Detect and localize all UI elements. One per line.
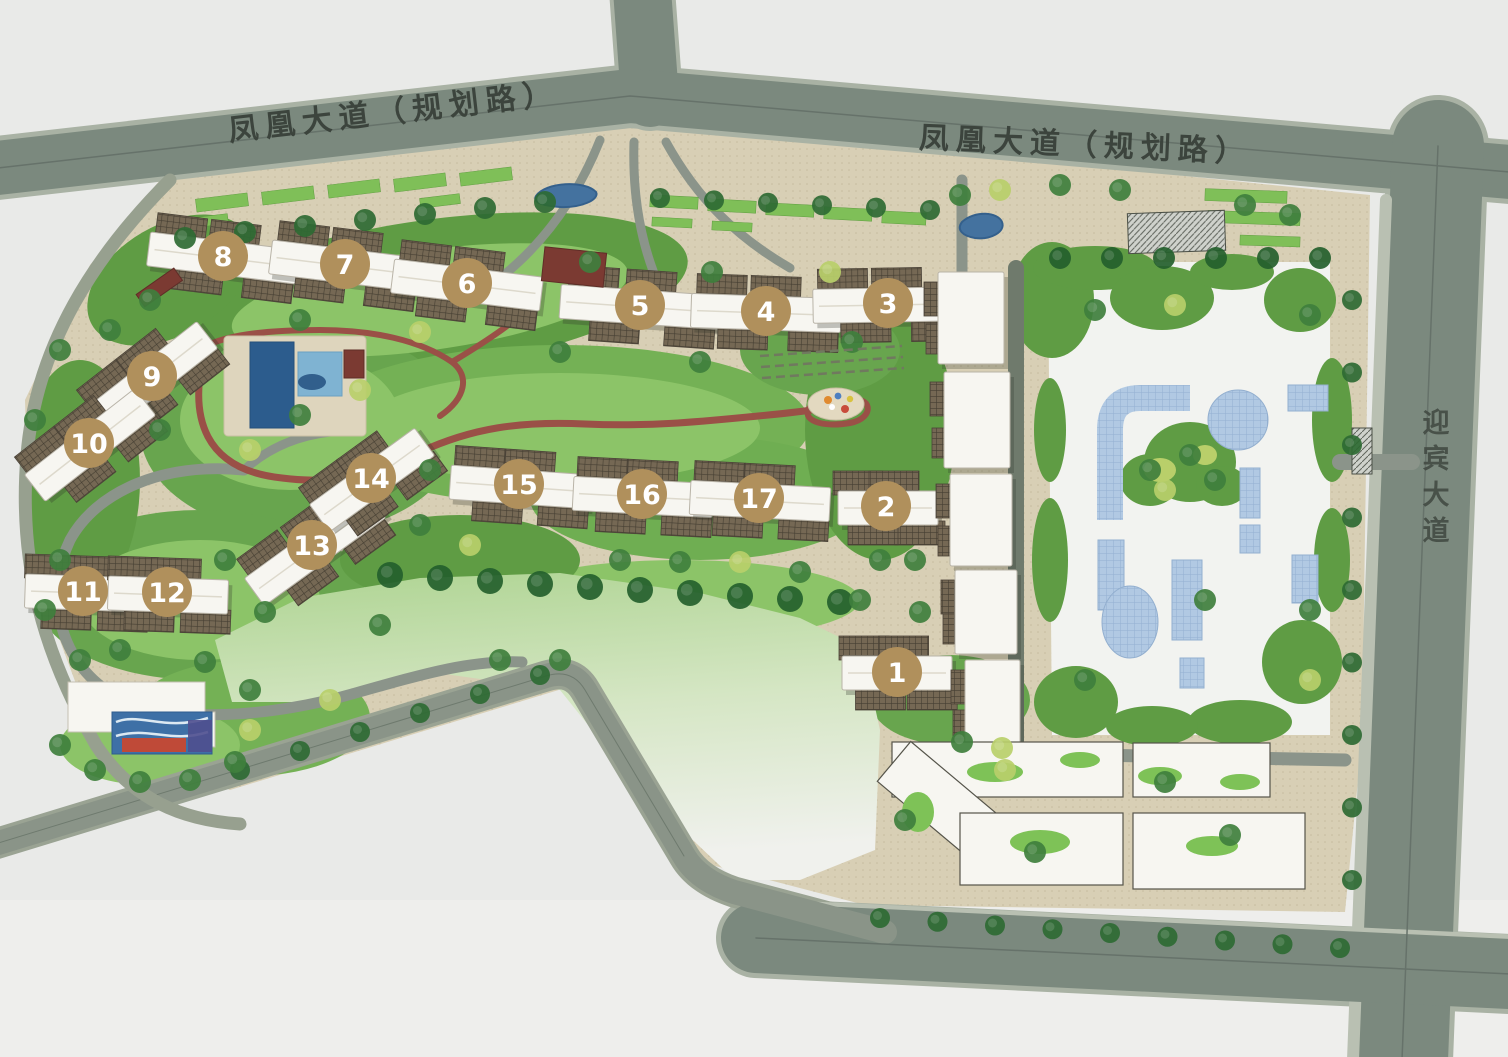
tree-icon (239, 679, 261, 701)
tree-highlight (242, 442, 252, 452)
tree-icon (34, 599, 56, 621)
tree-highlight (242, 722, 252, 732)
tree-highlight (1345, 728, 1354, 737)
tile-circle-plaza (1208, 390, 1268, 450)
tree-highlight (217, 552, 227, 562)
tree-icon (84, 759, 106, 781)
tree-highlight (1333, 941, 1342, 950)
tree-icon (99, 319, 121, 341)
tree-highlight (612, 552, 622, 562)
tree-icon (1049, 174, 1071, 196)
tree-highlight (1345, 438, 1354, 447)
tree-highlight (242, 682, 252, 692)
tree-icon (377, 562, 403, 588)
tree-icon (1219, 824, 1241, 846)
tree-highlight (87, 762, 97, 772)
tree-icon (1024, 841, 1046, 863)
tree-icon (777, 586, 803, 612)
tree-highlight (1027, 844, 1037, 854)
tree-icon (1273, 934, 1293, 954)
tree-highlight (531, 575, 543, 587)
tree-highlight (873, 911, 882, 920)
badge-number: 11 (64, 577, 102, 608)
tree-highlight (852, 592, 862, 602)
building-badge-11: 11 (58, 566, 108, 616)
tree-highlight (1345, 801, 1354, 810)
tree-highlight (1312, 250, 1322, 260)
tree-icon (1299, 304, 1321, 326)
tree-highlight (1052, 250, 1062, 260)
badge-number: 3 (879, 289, 898, 320)
tree-highlight (954, 734, 964, 744)
tree-icon (1139, 459, 1161, 481)
tree-icon (1109, 179, 1131, 201)
tree-icon (1342, 653, 1362, 673)
tree-highlight (1208, 250, 1218, 260)
tree-highlight (417, 206, 427, 216)
tree-icon (534, 191, 556, 213)
tree-icon (579, 251, 601, 273)
tree-highlight (732, 554, 742, 564)
building-badge-12: 12 (142, 567, 192, 617)
building-badge-14: 14 (346, 453, 396, 503)
tree-icon (1154, 771, 1176, 793)
tree-highlight (707, 193, 716, 202)
tree-icon (239, 439, 261, 461)
tree-icon (870, 908, 890, 928)
tree-icon (254, 601, 276, 623)
tree-highlight (931, 915, 940, 924)
tree-icon (1342, 508, 1362, 528)
tree-icon (1257, 247, 1279, 269)
tree-icon (1164, 294, 1186, 316)
tree-highlight (381, 566, 393, 578)
building-badge-13: 13 (287, 520, 337, 570)
tree-icon (1179, 444, 1201, 466)
tree-icon (1204, 469, 1226, 491)
tree-highlight (1197, 592, 1207, 602)
tree-highlight (1077, 672, 1087, 682)
tree-icon (1330, 938, 1350, 958)
tree-highlight (142, 292, 152, 302)
tree-highlight (1302, 602, 1312, 612)
tree-highlight (792, 564, 802, 574)
building-badge-7: 7 (320, 239, 370, 289)
plaza-green-blob (1106, 706, 1198, 746)
tree-highlight (1207, 472, 1217, 482)
tree-icon (409, 321, 431, 343)
tree-highlight (869, 201, 878, 210)
tree-icon (1342, 798, 1362, 818)
tree-icon (174, 227, 196, 249)
tree-highlight (353, 725, 362, 734)
tree-icon (1043, 919, 1063, 939)
tree-highlight (731, 587, 743, 599)
tree-icon (470, 684, 490, 704)
tree-icon (650, 188, 670, 208)
tree-icon (369, 614, 391, 636)
tree-highlight (1345, 656, 1354, 665)
tree-icon (530, 665, 550, 685)
tree-highlight (912, 604, 922, 614)
tree-highlight (1157, 774, 1167, 784)
tree-highlight (1302, 307, 1312, 317)
building-badge-6: 6 (442, 258, 492, 308)
tree-icon (727, 583, 753, 609)
play-equipment-white (829, 404, 835, 410)
tree-icon (909, 601, 931, 623)
tree-icon (1342, 580, 1362, 600)
tree-icon (669, 551, 691, 573)
tree-highlight (292, 312, 302, 322)
badge-number: 12 (148, 578, 186, 609)
tree-highlight (1345, 366, 1354, 375)
tree-icon (129, 771, 151, 793)
tree-highlight (477, 200, 487, 210)
tree-icon (194, 651, 216, 673)
tree-highlight (357, 212, 367, 222)
building-badge-3: 3 (863, 278, 913, 328)
tree-icon (1205, 247, 1227, 269)
tree-highlight (412, 324, 422, 334)
badge-number: 8 (214, 242, 233, 273)
tree-highlight (831, 593, 843, 605)
building-badge-8: 8 (198, 231, 248, 281)
tree-icon (827, 589, 853, 615)
tree-highlight (1302, 672, 1312, 682)
tree-highlight (822, 264, 832, 274)
tree-icon (849, 589, 871, 611)
tree-highlight (52, 737, 62, 747)
tree-highlight (112, 642, 122, 652)
tree-icon (459, 534, 481, 556)
plaza-green-blob (1188, 700, 1292, 744)
tree-icon (994, 759, 1016, 781)
tree-highlight (132, 774, 142, 784)
hedge-bar (1240, 235, 1300, 247)
tree-highlight (413, 706, 422, 715)
main-pool (250, 342, 294, 428)
tree-icon (577, 574, 603, 600)
tree-icon (1342, 363, 1362, 383)
tree-highlight (412, 517, 422, 527)
hedge-bar (712, 221, 752, 232)
tree-highlight (997, 762, 1007, 772)
tree-icon (409, 514, 431, 536)
tree-icon (69, 649, 91, 671)
badge-number: 1 (888, 658, 907, 689)
tree-highlight (1052, 177, 1062, 187)
tree-highlight (672, 554, 682, 564)
tile-oval (1102, 586, 1158, 658)
badge-number: 5 (631, 291, 650, 322)
tree-icon (427, 565, 453, 591)
play-equipment-red (841, 405, 849, 413)
tree-icon (1279, 204, 1301, 226)
tree-icon (609, 549, 631, 571)
tree-highlight (761, 196, 770, 205)
tree-highlight (1142, 462, 1152, 472)
tree-icon (1158, 927, 1178, 947)
tower-slab (955, 570, 1017, 654)
tree-highlight (533, 668, 542, 677)
tower-slab (938, 272, 1004, 364)
tree-highlight (152, 422, 162, 432)
tree-highlight (992, 182, 1002, 192)
tree-highlight (897, 812, 907, 822)
tree-highlight (815, 198, 824, 207)
tree-highlight (1087, 302, 1097, 312)
tree-highlight (227, 754, 237, 764)
tree-icon (149, 419, 171, 441)
tree-highlight (537, 194, 547, 204)
tree-highlight (431, 569, 443, 581)
tree-highlight (462, 537, 472, 547)
tree-highlight (1260, 250, 1270, 260)
tree-highlight (692, 354, 702, 364)
tree-highlight (872, 552, 882, 562)
tree-highlight (182, 772, 192, 782)
tree-icon (985, 916, 1005, 936)
pool-red-deck (122, 738, 186, 752)
tree-icon (49, 549, 71, 571)
tree-highlight (923, 203, 932, 212)
tree-highlight (781, 590, 793, 602)
badge-number: 4 (757, 297, 776, 328)
tree-highlight (293, 744, 302, 753)
tree-highlight (552, 344, 562, 354)
tree-icon (812, 195, 832, 215)
tree-icon (1215, 931, 1235, 951)
tile-rect (1292, 555, 1318, 603)
tree-icon (214, 549, 236, 571)
tree-icon (294, 215, 316, 237)
tree-highlight (844, 334, 854, 344)
playground (808, 388, 864, 420)
tree-highlight (1282, 207, 1292, 217)
tree-icon (869, 549, 891, 571)
tree-highlight (372, 617, 382, 627)
tree-highlight (473, 687, 482, 696)
tree-icon (789, 561, 811, 583)
play-equipment-yellow (847, 396, 853, 402)
badge-number: 9 (143, 362, 162, 393)
tree-highlight (1167, 297, 1177, 307)
badge-number: 13 (293, 531, 331, 562)
tree-highlight (907, 552, 917, 562)
tree-icon (989, 179, 1011, 201)
building-badge-15: 15 (494, 459, 544, 509)
tree-highlight (988, 919, 997, 928)
tree-icon (704, 190, 724, 210)
building-badge-16: 16 (617, 469, 667, 519)
tree-highlight (552, 652, 562, 662)
tile-rect (1180, 658, 1204, 688)
badge-number: 17 (740, 484, 778, 515)
tree-highlight (631, 581, 643, 593)
tree-icon (1342, 725, 1362, 745)
tree-icon (1234, 194, 1256, 216)
tree-highlight (177, 230, 187, 240)
tree-highlight (582, 254, 592, 264)
tree-highlight (102, 322, 112, 332)
tree-icon (1299, 669, 1321, 691)
hedge-bar (882, 211, 927, 225)
tree-icon (951, 731, 973, 753)
tree-highlight (994, 740, 1004, 750)
tree-highlight (352, 382, 362, 392)
tree-highlight (1218, 934, 1227, 943)
badge-number: 10 (70, 429, 108, 460)
tree-icon (109, 639, 131, 661)
tree-icon (627, 577, 653, 603)
tower-slab (965, 660, 1020, 750)
tree-highlight (581, 578, 593, 590)
kids-pool (298, 352, 342, 396)
tree-icon (894, 809, 916, 831)
road-label-yingbin: 迎宾大道 (1418, 408, 1450, 552)
tree-icon (527, 571, 553, 597)
tree-icon (474, 197, 496, 219)
tree-icon (179, 769, 201, 791)
tree-icon (866, 198, 886, 218)
tree-icon (549, 341, 571, 363)
plaza-green-blob (1264, 268, 1336, 332)
tree-highlight (1161, 930, 1170, 939)
pool-pavilion (344, 350, 364, 378)
tree-icon (1309, 247, 1331, 269)
hedge-bar (652, 217, 692, 228)
tree-icon (701, 261, 723, 283)
site-plan-canvas: 1 2 3 4 5 6 7 8 9 10 11 12 13 14 15 16 1… (0, 0, 1508, 1057)
tree-icon (239, 719, 261, 741)
tree-highlight (1112, 182, 1122, 192)
tree-icon (419, 459, 441, 481)
tree-icon (819, 261, 841, 283)
tree-highlight (37, 602, 47, 612)
building-badge-9: 9 (127, 351, 177, 401)
tree-highlight (1046, 922, 1055, 931)
master-plan-svg: 1 2 3 4 5 6 7 8 9 10 11 12 13 14 15 16 1… (0, 0, 1508, 1057)
tree-highlight (422, 462, 432, 472)
tree-icon (139, 289, 161, 311)
tree-highlight (1222, 827, 1232, 837)
tree-highlight (1345, 511, 1354, 520)
tree-highlight (257, 604, 267, 614)
tree-highlight (1103, 926, 1112, 935)
play-equipment-orange (824, 396, 832, 404)
pool-purple-deck (188, 720, 212, 752)
tree-icon (991, 737, 1013, 759)
badge-number: 16 (623, 480, 661, 511)
tile-rect (1240, 525, 1260, 553)
tree-icon (1299, 599, 1321, 621)
tree-highlight (492, 652, 502, 662)
tree-highlight (197, 654, 207, 664)
tree-highlight (52, 342, 62, 352)
tree-icon (1084, 299, 1106, 321)
parking-canopy-north (1127, 210, 1225, 253)
badge-number: 6 (458, 269, 477, 300)
playground-base (808, 388, 864, 420)
badge-number: 2 (877, 492, 896, 523)
building-badge-1: 1 (872, 647, 922, 697)
tree-highlight (1345, 873, 1354, 882)
tree-icon (224, 751, 246, 773)
tree-highlight (1276, 937, 1285, 946)
tree-icon (1101, 247, 1123, 269)
tree-icon (689, 351, 711, 373)
tree-highlight (237, 224, 247, 234)
tree-icon (1074, 669, 1096, 691)
tree-icon (350, 722, 370, 742)
tree-icon (49, 734, 71, 756)
tree-highlight (1182, 447, 1192, 457)
tree-highlight (52, 552, 62, 562)
plaza-green-blob (1032, 498, 1068, 622)
plaza-green-blob (1262, 620, 1342, 704)
tree-icon (928, 912, 948, 932)
tree-icon (354, 209, 376, 231)
building-badge-10: 10 (64, 418, 114, 468)
tree-highlight (72, 652, 82, 662)
tree-highlight (1104, 250, 1114, 260)
tree-highlight (292, 407, 302, 417)
tree-icon (729, 551, 751, 573)
tree-icon (489, 649, 511, 671)
play-equipment-blue (835, 393, 842, 400)
tree-highlight (653, 191, 662, 200)
tree-icon (410, 703, 430, 723)
badge-number: 7 (336, 250, 355, 281)
tree-highlight (1345, 583, 1354, 592)
tree-highlight (297, 218, 307, 228)
tree-icon (289, 404, 311, 426)
tree-icon (1342, 870, 1362, 890)
tree-icon (758, 193, 778, 213)
tile-rect (1288, 385, 1328, 411)
tree-icon (677, 580, 703, 606)
tree-highlight (704, 264, 714, 274)
tree-highlight (1156, 250, 1166, 260)
badge-number: 15 (500, 470, 538, 501)
tree-highlight (322, 692, 332, 702)
tree-icon (1153, 247, 1175, 269)
building-badge-5: 5 (615, 280, 665, 330)
building-badge-4: 4 (741, 286, 791, 336)
tree-icon (1342, 290, 1362, 310)
tree-icon (1342, 435, 1362, 455)
tree-highlight (952, 187, 962, 197)
tower-slab (944, 372, 1010, 468)
tree-highlight (1157, 482, 1167, 492)
tree-icon (349, 379, 371, 401)
tree-icon (289, 309, 311, 331)
tree-icon (49, 339, 71, 361)
tree-icon (1049, 247, 1071, 269)
tree-icon (1100, 923, 1120, 943)
badge-number: 14 (352, 464, 390, 495)
tree-highlight (27, 412, 37, 422)
tree-highlight (1345, 293, 1354, 302)
tree-icon (1154, 479, 1176, 501)
pool-island (298, 374, 326, 390)
tree-icon (549, 649, 571, 671)
tree-icon (920, 200, 940, 220)
tree-icon (414, 203, 436, 225)
plaza-green-blob (1034, 378, 1066, 482)
tree-icon (24, 409, 46, 431)
